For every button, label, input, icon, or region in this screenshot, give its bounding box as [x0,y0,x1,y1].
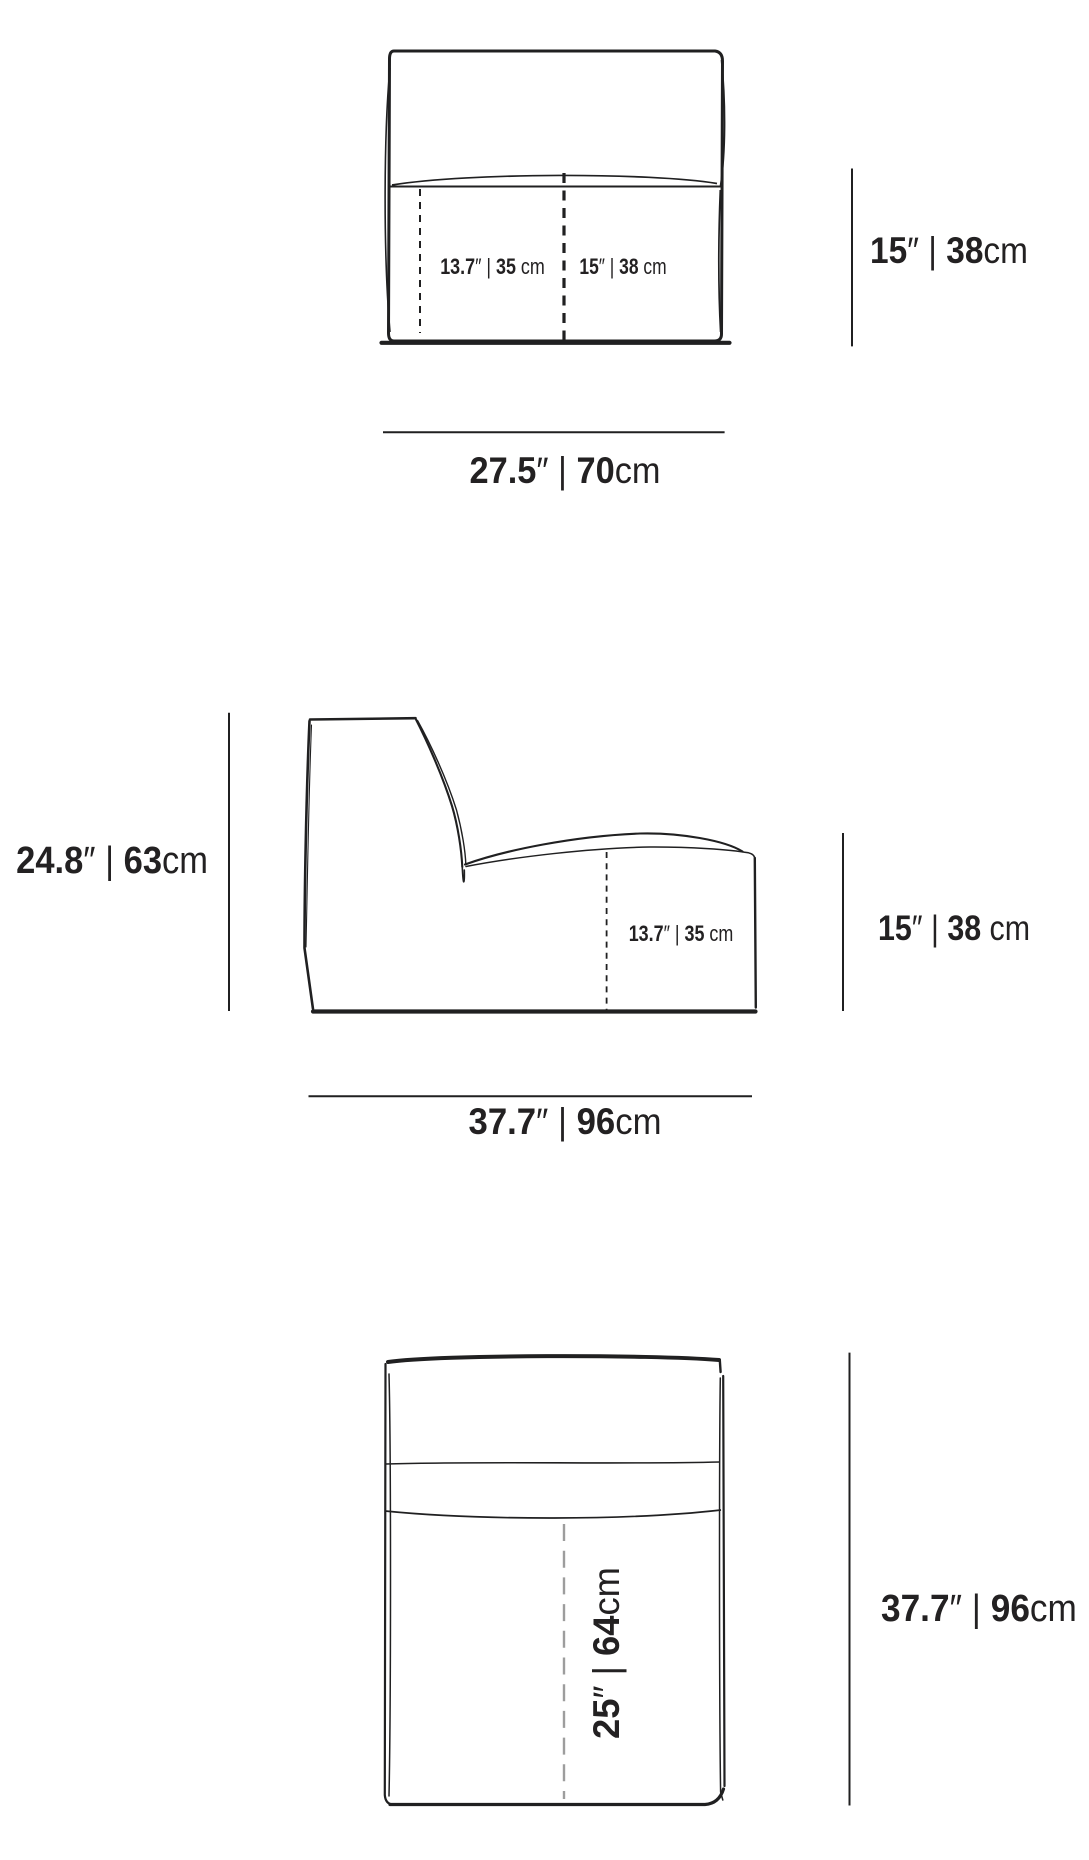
svg-text:13.7″ | 35 cm: 13.7″ | 35 cm [440,255,545,279]
svg-text:13.7″ | 35 cm: 13.7″ | 35 cm [629,922,734,946]
svg-text:15″ | 38cm: 15″ | 38cm [870,230,1028,271]
svg-text:37.7″ | 96cm: 37.7″ | 96cm [469,1101,662,1142]
svg-text:25″ | 64cm: 25″ | 64cm [586,1567,627,1739]
svg-text:27.5″ | 70cm: 27.5″ | 70cm [470,450,661,491]
svg-text:15″ | 38 cm: 15″ | 38 cm [579,255,666,279]
svg-text:24.8″ | 63cm: 24.8″ | 63cm [16,838,208,881]
svg-text:15″ | 38 cm: 15″ | 38 cm [878,908,1030,948]
svg-text:37.7″ | 96cm: 37.7″ | 96cm [881,1587,1077,1630]
